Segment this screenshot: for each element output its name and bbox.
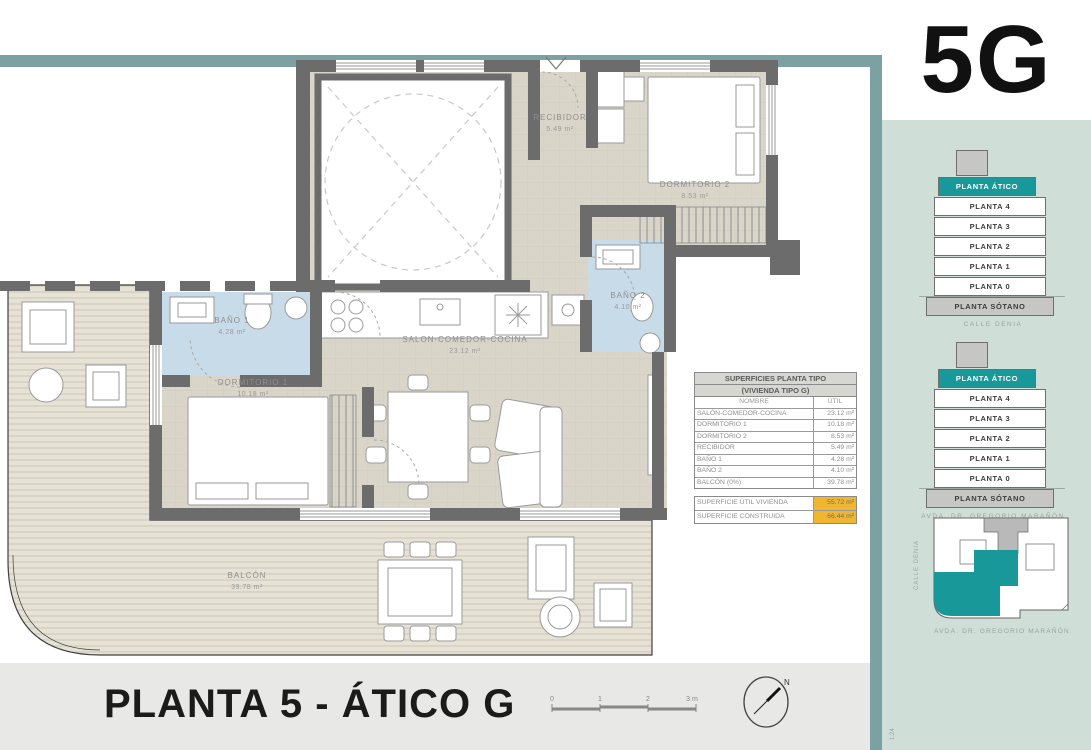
svg-text:3 m: 3 m bbox=[686, 696, 698, 703]
table-row: BAÑO 14.28 m² bbox=[695, 455, 856, 467]
room-label-balcon: BALCÓN bbox=[228, 571, 267, 580]
floor-row-atico: PLANTA ÁTICO bbox=[938, 177, 1036, 196]
svg-text:0: 0 bbox=[550, 696, 554, 703]
svg-text:4.28 m²: 4.28 m² bbox=[218, 329, 245, 336]
floor-row: PLANTA 3 bbox=[934, 217, 1046, 236]
lightwell bbox=[318, 77, 508, 287]
surface-table-title: SUPERFICIES PLANTA TIPO bbox=[695, 373, 856, 385]
floor-row: PLANTA 4 bbox=[934, 197, 1046, 216]
building-section-2: PLANTA ÁTICO PLANTA 4 PLANTA 3 PLANTA 2 … bbox=[918, 342, 1068, 520]
street-caption: CALLE DENIA bbox=[918, 321, 1068, 328]
room-label-dormitorio1: DORMITORIO 1 bbox=[218, 378, 289, 387]
floor-row: PLANTA 3 bbox=[934, 409, 1046, 428]
table-row: DORMITORIO 28.53 m² bbox=[695, 432, 856, 444]
chimney-block bbox=[956, 150, 988, 176]
total-row: SUPERFICIE CONSTRUIDA66.44 m² bbox=[695, 511, 856, 524]
table-row: BAÑO 24.10 m² bbox=[695, 466, 856, 478]
svg-text:23.12 m²: 23.12 m² bbox=[449, 348, 481, 355]
table-row: DORMITORIO 110.18 m² bbox=[695, 420, 856, 432]
surface-table: SUPERFICIES PLANTA TIPO (VIVIENDA TIPO G… bbox=[694, 372, 857, 524]
room-label-bano2: BAÑO 2 bbox=[610, 291, 645, 300]
floor-row-sotano: PLANTA SÓTANO bbox=[926, 489, 1054, 508]
floor-row: PLANTA 0 bbox=[934, 469, 1046, 488]
surface-table-header: NOMBREÚTIL bbox=[695, 397, 856, 409]
floor-row: PLANTA 1 bbox=[934, 449, 1046, 468]
scale-bar: 0 1 2 3 m bbox=[540, 692, 710, 722]
table-row: BALCÓN (0%)39.78 m² bbox=[695, 478, 856, 489]
north-label: N bbox=[784, 678, 790, 687]
room-label-salon: SALON-COMEDOR-COCINA bbox=[402, 335, 527, 344]
chimney-block bbox=[956, 342, 988, 368]
sidebar: PLANTA ÁTICO PLANTA 4 PLANTA 3 PLANTA 2 … bbox=[882, 120, 1091, 750]
street-label-left: CALLE DENIA bbox=[914, 540, 920, 590]
surface-totals: SUPERFICIE ÚTIL VIVIENDA55.72 m² SUPERFI… bbox=[694, 496, 857, 524]
surface-table-subtitle: (VIVIENDA TIPO G) bbox=[695, 385, 856, 397]
svg-text:10.18 m²: 10.18 m² bbox=[237, 391, 269, 398]
page-title: PLANTA 5 - ÁTICO G bbox=[104, 682, 515, 727]
room-label-recibidor: RECIBIDOR bbox=[533, 113, 586, 122]
north-compass: N bbox=[740, 672, 800, 732]
floor-row-atico: PLANTA ÁTICO bbox=[938, 369, 1036, 388]
street-label-bottom: AVDA. DR. GREGORIO MARAÑÓN bbox=[922, 628, 1082, 635]
total-row: SUPERFICIE ÚTIL VIVIENDA55.72 m² bbox=[695, 497, 856, 511]
svg-text:39.78 m²: 39.78 m² bbox=[231, 584, 263, 591]
floor-row: PLANTA 4 bbox=[934, 389, 1046, 408]
floor-row: PLANTA 0 bbox=[934, 277, 1046, 296]
svg-text:2: 2 bbox=[646, 696, 650, 703]
table-row: RECIBIDOR5.49 m² bbox=[695, 443, 856, 455]
floor-row: PLANTA 1 bbox=[934, 257, 1046, 276]
svg-text:1: 1 bbox=[598, 696, 602, 703]
room-label-dormitorio2: DORMITORIO 2 bbox=[660, 180, 731, 189]
floor-plan: RECIBIDOR 5.49 m² DORMITORIO 2 8.53 m² B… bbox=[0, 55, 872, 663]
table-row: SALÓN-COMEDOR-COCINA23.12 m² bbox=[695, 409, 856, 421]
svg-text:4.10 m²: 4.10 m² bbox=[614, 304, 641, 311]
plan-sheet: RECIBIDOR 5.49 m² DORMITORIO 2 8.53 m² B… bbox=[0, 0, 1091, 750]
sidebar-footnote: 1.24 bbox=[890, 728, 896, 740]
svg-text:8.53 m²: 8.53 m² bbox=[681, 193, 708, 200]
room-label-bano1: BAÑO 1 bbox=[214, 316, 249, 325]
site-plan bbox=[922, 512, 1082, 624]
floor-row: PLANTA 2 bbox=[934, 429, 1046, 448]
building-section-1: PLANTA ÁTICO PLANTA 4 PLANTA 3 PLANTA 2 … bbox=[918, 150, 1068, 328]
unit-type-label: 5G bbox=[882, 0, 1091, 120]
floor-row-sotano: PLANTA SÓTANO bbox=[926, 297, 1054, 316]
svg-text:5.49 m²: 5.49 m² bbox=[546, 126, 573, 133]
floor-row: PLANTA 2 bbox=[934, 237, 1046, 256]
